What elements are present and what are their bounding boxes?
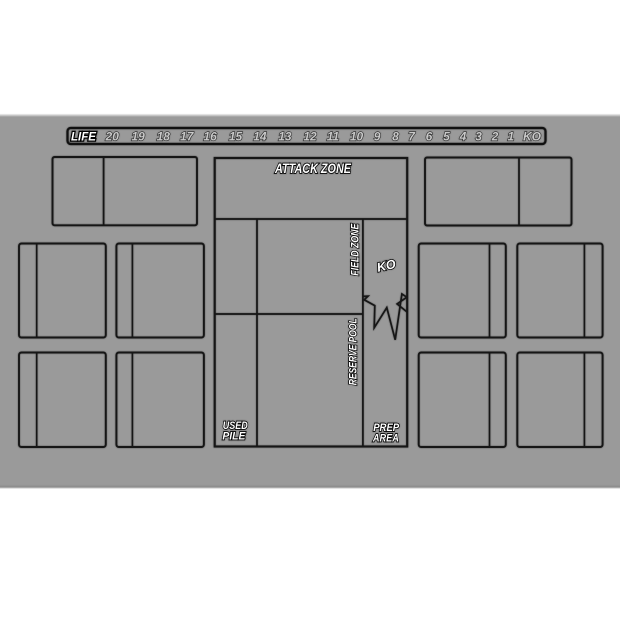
svg-text:KO: KO bbox=[523, 130, 542, 144]
svg-text:1: 1 bbox=[508, 130, 515, 144]
svg-text:11: 11 bbox=[327, 130, 340, 144]
svg-text:2: 2 bbox=[491, 130, 499, 144]
svg-text:15: 15 bbox=[229, 130, 243, 144]
svg-text:10: 10 bbox=[350, 130, 364, 144]
svg-text:8: 8 bbox=[392, 130, 399, 144]
svg-text:RESERVE POOL: RESERVE POOL bbox=[348, 318, 360, 385]
svg-text:6: 6 bbox=[426, 130, 433, 144]
svg-text:FIELD ZONE: FIELD ZONE bbox=[350, 223, 362, 276]
svg-text:ATTACK ZONE: ATTACK ZONE bbox=[274, 160, 351, 176]
svg-text:18: 18 bbox=[157, 130, 171, 144]
svg-text:5: 5 bbox=[443, 130, 450, 144]
svg-text:3: 3 bbox=[475, 130, 482, 144]
svg-text:20: 20 bbox=[105, 130, 120, 144]
svg-text:AREA: AREA bbox=[372, 433, 399, 445]
svg-text:19: 19 bbox=[131, 130, 145, 144]
svg-text:16: 16 bbox=[203, 130, 217, 144]
svg-text:9: 9 bbox=[374, 130, 381, 144]
svg-text:4: 4 bbox=[459, 130, 467, 144]
svg-text:PILE: PILE bbox=[222, 431, 246, 443]
svg-text:LIFE: LIFE bbox=[71, 132, 96, 144]
svg-text:13: 13 bbox=[278, 130, 292, 144]
svg-text:12: 12 bbox=[303, 130, 317, 144]
svg-text:17: 17 bbox=[180, 130, 195, 144]
svg-text:14: 14 bbox=[253, 130, 267, 144]
